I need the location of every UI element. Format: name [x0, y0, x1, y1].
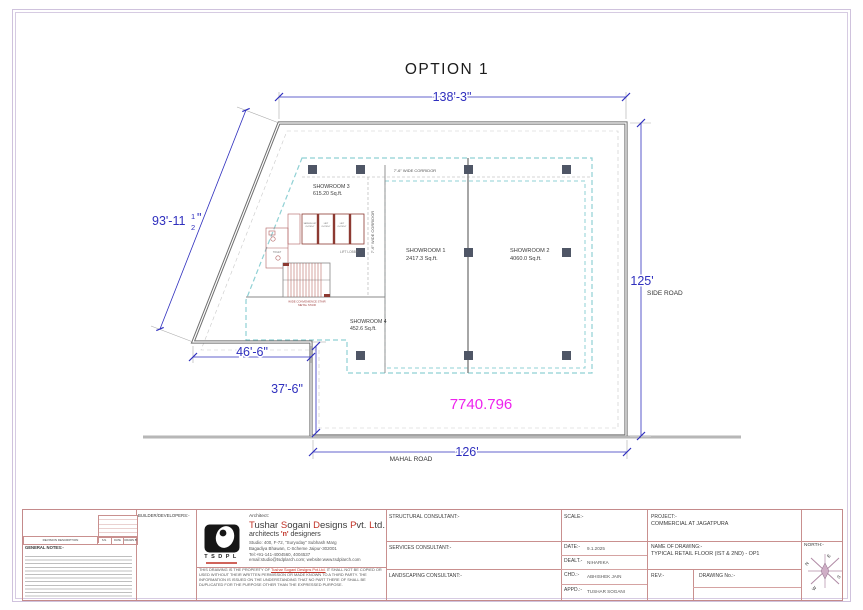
service-lift-size: 6'-0"X6'-0" [306, 226, 315, 228]
chd-value: ABHISHEK JAIN [587, 574, 621, 579]
architect-address: Studio: 400, F-72, "Suryoday" Subhash Ma… [249, 540, 361, 563]
project-column: PROJECT:- COMMERCIAL AT JAGATPURA NAME O… [647, 510, 801, 600]
drawing-no-label: DRAWING No.:- [699, 573, 735, 579]
architect-tagline: architects 'n' designers [249, 531, 321, 538]
scale-label: SCALE:- [564, 514, 583, 520]
project-label: PROJECT:- [651, 514, 677, 520]
architect-label: Architect: [249, 514, 269, 519]
showroom-3-area: 615.20 Sq.ft. [313, 191, 342, 197]
dim-top: 138'-3" [433, 90, 472, 104]
consultants-column: STRUCTURAL CONSULTANT:- SERVICES CONSULT… [386, 510, 561, 600]
revision-notes-area: REVISION DESCRIPTION S.N. DATE DRAWN BY … [23, 510, 136, 600]
tsdpl-logo [204, 524, 240, 553]
corridor-left-label: 7'-6" WIDE CORRIDOR [370, 211, 375, 254]
lift-1-size: 6'-0"X6'-0" [322, 226, 331, 228]
lift-2-label: LIFT [340, 223, 345, 225]
dim-notch-width: 46'-6" [236, 345, 268, 359]
showroom-2-area: 4060.0 Sq.ft. [510, 256, 542, 262]
builder-label: BUILDER/DEVELOPERS:- [138, 513, 190, 518]
general-notes-text [25, 556, 132, 598]
disclaimer-text: THIS DRAWING IS THE PROPERTY OF Tushar S… [199, 568, 383, 588]
showroom-4-name: SHOWROOM 4 [350, 319, 387, 325]
tsdpl-logo-tagline [206, 562, 237, 564]
total-area-value: 7740.796 [450, 396, 513, 413]
dim-right: 125' [630, 274, 653, 288]
dim-bottom: 126' [455, 445, 478, 459]
svg-text:1: 1 [191, 212, 195, 221]
showroom-1-area: 2417.3 Sq.ft. [406, 256, 438, 262]
drawing-sheet: OPTION 1 SERVICE LIFT 6'-0" [0, 0, 863, 610]
dim-notch-height: 37'-6" [271, 382, 303, 396]
revision-date-label: DATE [112, 537, 125, 544]
tsdpl-logo-text: TSDPL [203, 554, 241, 560]
title-block: REVISION DESCRIPTION S.N. DATE DRAWN BY … [22, 509, 843, 601]
showroom-2-name: SHOWROOM 2 [510, 248, 549, 254]
dealt-label: DEALT.- [564, 558, 582, 564]
svg-text:2: 2 [191, 223, 195, 232]
showroom-3-name: SHOWROOM 3 [313, 184, 350, 190]
revision-sn-label: S.N. [98, 537, 112, 544]
north-label: NORTH:- [804, 543, 824, 548]
project-value: COMMERCIAL AT JAGATPURA [651, 521, 728, 527]
showroom-inner-outline [385, 181, 585, 368]
svg-text:W: W [811, 585, 818, 592]
builder-cell: BUILDER/DEVELOPERS:- [138, 513, 194, 519]
north-column: NORTH:- E N S W [801, 510, 842, 600]
lift-2-size: 6'-0"X6'-0" [338, 226, 347, 228]
date-label: DATE:- [564, 544, 580, 550]
drawing-name-value: TYPICAL RETAIL FLOOR (IST & 2ND) - OP1 [651, 551, 759, 557]
drawing-name-label: NAME OF DRAWING:- [651, 544, 702, 550]
svg-text:S: S [836, 574, 842, 580]
svg-text:E: E [826, 553, 832, 559]
room-labels: SHOWROOM 1 2417.3 Sq.ft. SHOWROOM 2 4060… [313, 184, 549, 332]
dimension-lines [156, 93, 645, 456]
revision-rows [98, 515, 138, 538]
option-title: OPTION 1 [405, 61, 489, 78]
revision-header: REVISION DESCRIPTION S.N. DATE DRAWN BY [23, 536, 138, 545]
revision-description-label: REVISION DESCRIPTION [24, 537, 98, 544]
staircase [283, 263, 330, 297]
stair-note-2: METAL STAIR [298, 303, 316, 307]
general-notes-label: GENERAL NOTES:- [25, 545, 64, 550]
setback-line [201, 131, 618, 428]
svg-text:N: N [804, 561, 810, 567]
dealt-value: NIHARIKA [587, 560, 609, 565]
dim-left-fraction: 93'-11 1 2 " [152, 211, 201, 232]
toilet-label: TOILET [273, 251, 282, 254]
chd-label: CHD.:- [564, 572, 579, 578]
revision-drawn-label: DRAWN BY [124, 537, 137, 544]
lift-lobby-label: LIFT LOBBY [340, 250, 359, 254]
scale-date-column: SCALE:- DATE:- 9.1.2025 DEALT.- NIHARIKA… [561, 510, 647, 600]
corridor-top-label: 7'-6" WIDE CORRIDOR [394, 168, 437, 173]
appd-value: TUSHAR SOGANI [587, 589, 625, 594]
showroom-1-name: SHOWROOM 1 [406, 248, 445, 254]
toilet-block [266, 214, 300, 268]
architect-cell: TSDPL Architect: Tushar Sogani Designs P… [196, 510, 386, 600]
svg-text:": " [197, 211, 201, 225]
lift-1-label: LIFT [324, 223, 329, 225]
extension-lines [151, 92, 651, 459]
architect-firm-name: Tushar Sogani Designs Pvt. Ltd. [249, 520, 385, 531]
side-road-label: SIDE ROAD [647, 290, 683, 297]
date-value: 9.1.2025 [587, 546, 605, 551]
columns [308, 165, 571, 360]
showroom-4-area: 452.6 Sq.ft. [350, 326, 377, 332]
appd-label: APPD.:- [564, 587, 582, 593]
svg-text:93'-11: 93'-11 [152, 214, 185, 228]
landscaping-consultant-label: LANDSCAPING CONSULTANT:- [389, 573, 462, 579]
compass-rose: E N S W [801, 549, 842, 599]
floor-plan-canvas: OPTION 1 SERVICE LIFT 6'-0" [0, 0, 863, 505]
service-lift-label: SERVICE LIFT [304, 223, 318, 225]
structural-consultant-label: STRUCTURAL CONSULTANT:- [389, 514, 459, 520]
lift-bank: SERVICE LIFT 6'-0"X6'-0" LIFT 6'-0"X6'-0… [302, 214, 364, 244]
rev-label: REV:- [651, 573, 664, 579]
services-consultant-label: SERVICES CONSULTANT:- [389, 545, 451, 551]
mahal-road-label: MAHAL ROAD [390, 456, 433, 463]
